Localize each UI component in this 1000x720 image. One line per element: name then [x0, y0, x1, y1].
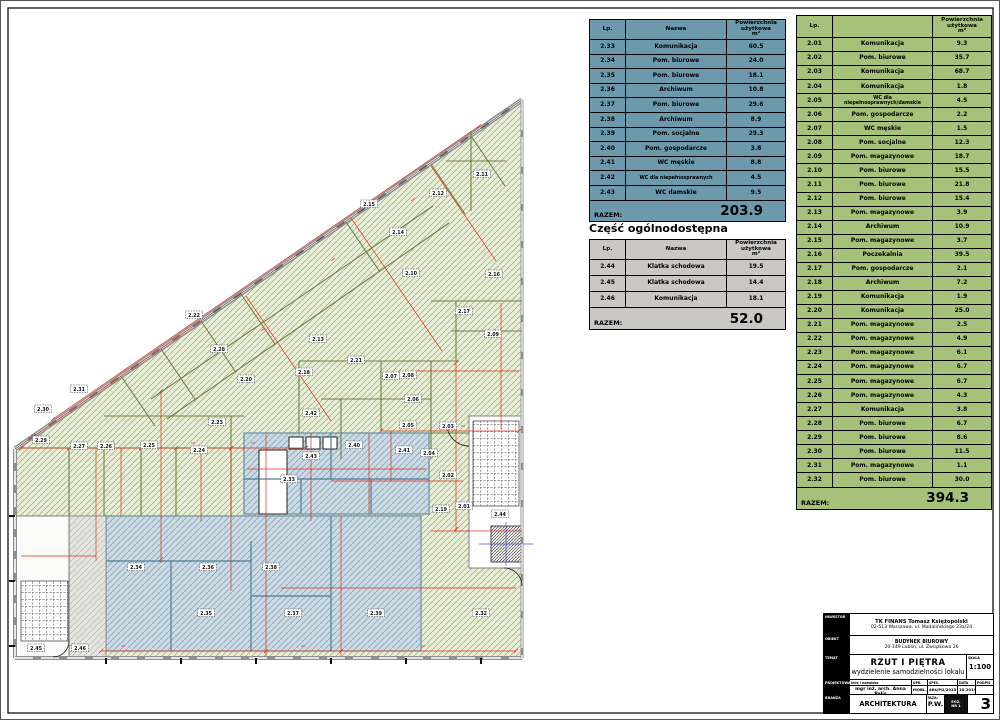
room-label-2-27: 2.27 — [71, 442, 88, 450]
room-label-2-08: 2.08 — [400, 371, 417, 379]
room-label-2-34: 2.34 — [128, 563, 145, 571]
table-row: 2.11Pom. biurowe21.8 — [797, 177, 991, 191]
svg-text:2.26: 2.26 — [100, 444, 112, 450]
room-label-2-33: 2.33 — [281, 475, 298, 483]
svg-text:2.40: 2.40 — [348, 443, 360, 449]
table-row: 2.29Pom. biurowe8.6 — [797, 430, 991, 444]
table-row: 2.23Pom. magazynowe6.1 — [797, 346, 991, 360]
table-row: 2.42WC dla niepełnosprawnych4.5 — [590, 170, 785, 185]
svg-text:2.35: 2.35 — [200, 611, 212, 617]
signature-value — [976, 686, 993, 688]
table-header-row: Lp.Powierzchnia użytkowam² — [797, 16, 991, 37]
elevator-car — [306, 437, 320, 449]
drawing-subtitle: wydzielenie samodzielności lokalu — [851, 668, 964, 676]
room-label-2-05: 2.05 — [400, 421, 417, 429]
stamp-cell: EGZ.NR 1 — [944, 695, 967, 713]
table-header-row: Lp.NazwaPowierzchnia użytkowam² — [590, 240, 785, 259]
room-label-2-31: 2.31 — [71, 385, 88, 393]
room-label-2-24: 2.24 — [191, 446, 208, 454]
svg-text:2.34: 2.34 — [130, 565, 142, 571]
svg-text:2.46: 2.46 — [74, 646, 86, 652]
svg-text:2.24: 2.24 — [193, 448, 205, 454]
room-label-2-25: 2.25 — [141, 441, 158, 449]
room-label-2-01: 2.01 — [456, 502, 473, 510]
room-label-2-06: 2.06 — [405, 395, 422, 403]
table-row: 2.22Pom. magazynowe4.9 — [797, 332, 991, 346]
table-row: 2.27Komunikacja3.8 — [797, 402, 991, 416]
room-label-2-13: 2.13 — [310, 335, 327, 343]
room-label-2-45: 2.45 — [28, 644, 45, 652]
room-label-2-29: 2.29 — [33, 436, 50, 444]
total-value: 52.0 — [730, 311, 763, 327]
date-value: 10.2019 — [958, 686, 975, 693]
table-row: 2.15Pom. magazynowe3.7 — [797, 234, 991, 248]
sheet-number: 3 — [967, 695, 993, 713]
scale-label: SKALA — [967, 655, 981, 661]
room-label-2-42: 2.42 — [303, 409, 320, 417]
svg-text:2.36: 2.36 — [202, 565, 214, 571]
svg-text:2.13: 2.13 — [312, 337, 324, 343]
common-area-heading: Część ogólnodostępna — [589, 222, 728, 235]
room-label-2-38: 2.38 — [263, 563, 280, 571]
svg-text:2.17: 2.17 — [458, 309, 470, 315]
table-lokal-biurowy-1: Lp.NazwaPowierzchnia użytkowam²2.33Komun… — [589, 19, 786, 222]
svg-text:2.22: 2.22 — [188, 313, 200, 319]
room-label-2-26: 2.26 — [98, 442, 115, 450]
room-label-2-10: 2.10 — [403, 269, 420, 277]
svg-text:2.12: 2.12 — [432, 191, 444, 197]
table-row: 2.20Komunikacja25.0 — [797, 304, 991, 318]
table-row: 2.10Pom. biurowe15.5 — [797, 163, 991, 177]
table-row: 2.30Pom. biurowe11.5 — [797, 444, 991, 458]
svg-text:2.45: 2.45 — [30, 646, 42, 652]
svg-text:2.02: 2.02 — [442, 473, 454, 479]
table-row: 2.04Komunikacja1.8 — [797, 79, 991, 93]
room-label-2-18: 2.18 — [296, 368, 313, 376]
total-label: RAZEM: — [797, 495, 829, 509]
svg-text:2.39: 2.39 — [370, 611, 382, 617]
total-label: RAZEM: — [590, 315, 622, 329]
object-label: OBIEKT — [824, 636, 850, 654]
scale-value: 1:100 — [969, 663, 991, 671]
svg-text:2.15: 2.15 — [363, 202, 375, 208]
svg-text:2.27: 2.27 — [73, 444, 85, 450]
svg-text:2.33: 2.33 — [283, 477, 295, 483]
svg-text:2.38: 2.38 — [265, 565, 277, 571]
upr-value: MOBL. — [912, 686, 927, 693]
table-total-row: RAZEM:394.3 — [797, 487, 991, 509]
table-row: 2.06Pom. gospodarcze2.2 — [797, 107, 991, 121]
phase-value: P.W. — [928, 700, 943, 708]
table-row: 2.41WC męskie8.8 — [590, 156, 785, 171]
svg-text:2.03: 2.03 — [442, 424, 454, 430]
total-value: 394.3 — [926, 490, 969, 506]
object-address: 20-149 Lublin, ul. Związkowa 26 — [884, 645, 958, 650]
branch-value: ARCHITEKTURA — [850, 695, 926, 713]
room-label-2-37: 2.37 — [285, 609, 302, 617]
table-row: 2.21Pom. magazynowe2.5 — [797, 318, 991, 332]
svg-text:2.41: 2.41 — [398, 448, 410, 454]
svg-text:2.20: 2.20 — [240, 377, 252, 383]
svg-text:2.04: 2.04 — [423, 451, 435, 457]
svg-text:2.42: 2.42 — [305, 411, 317, 417]
room-label-2-44: 2.44 — [492, 510, 509, 518]
table-czesc-ogolnodostepna: Lp.NazwaPowierzchnia użytkowam²2.44Klatk… — [589, 239, 786, 330]
room-label-2-17: 2.17 — [456, 307, 473, 315]
room-label-2-19: 2.19 — [433, 505, 450, 513]
room-label-2-02: 2.02 — [440, 471, 457, 479]
table-row: 2.45Klatka schodowa14.4 — [590, 275, 785, 291]
total-label: RAZEM: — [590, 207, 622, 221]
table-row: 2.16Poczekalnia39.5 — [797, 248, 991, 262]
svg-text:2.07: 2.07 — [385, 374, 397, 380]
investor-label: INWESTOR — [824, 614, 850, 635]
branch-label: BRANŻA — [824, 695, 850, 713]
room-label-2-35: 2.35 — [198, 609, 215, 617]
table-row: 2.38Archiwum8.9 — [590, 112, 785, 127]
table-row: 2.32Pom. biurowe30.0 — [797, 472, 991, 486]
room-label-2-09: 2.09 — [485, 330, 502, 338]
room-label-2-43: 2.43 — [303, 452, 320, 460]
table-row: 2.18Archiwum7.2 — [797, 276, 991, 290]
room-label-2-03: 2.03 — [440, 422, 457, 430]
table-row: 2.08Pom. socjalne12.3 — [797, 135, 991, 149]
svg-text:2.16: 2.16 — [488, 272, 500, 278]
table-row: 2.01Komunikacja9.3 — [797, 37, 991, 51]
svg-text:2.10: 2.10 — [405, 271, 417, 277]
table-row: 2.31Pom. magazynowe1.1 — [797, 458, 991, 472]
room-label-2-36: 2.36 — [200, 563, 217, 571]
spec-value: 464/PO/2015 — [928, 686, 957, 693]
table-row: 2.43WC damskie9.5 — [590, 185, 785, 200]
table-row: 2.36Archiwum10.8 — [590, 83, 785, 98]
table-row: 2.07WC męskie1.5 — [797, 121, 991, 135]
table-row: 2.37Pom. biurowe29.6 — [590, 97, 785, 112]
drawing-sheet: 2.012.022.032.042.052.062.072.082.092.10… — [0, 0, 1000, 720]
svg-text:2.30: 2.30 — [37, 407, 49, 413]
table-row: 2.12Pom. biurowe15.4 — [797, 192, 991, 206]
table-row: 2.24Pom. magazynowe6.7 — [797, 360, 991, 374]
stair-2-45 — [21, 581, 68, 641]
room-label-2-16: 2.16 — [486, 270, 503, 278]
room-label-2-11: 2.11 — [474, 170, 491, 178]
room-label-2-32: 2.32 — [473, 609, 490, 617]
table-row: 2.33Komunikacja60.5 — [590, 39, 785, 54]
table-row: 2.13Pom. magazynowe3.9 — [797, 206, 991, 220]
table-lokal-biurowy-2: Lp.Powierzchnia użytkowam²2.01Komunikacj… — [796, 15, 992, 510]
room-label-2-20: 2.20 — [238, 375, 255, 383]
room-label-2-28: 2.28 — [211, 345, 228, 353]
svg-text:2.23: 2.23 — [211, 420, 223, 426]
svg-text:2.19: 2.19 — [435, 507, 447, 513]
room-label-2-21: 2.21 — [348, 356, 365, 364]
svg-text:2.01: 2.01 — [458, 504, 470, 510]
table-row: 2.26Pom. magazynowe4.3 — [797, 388, 991, 402]
table-row: 2.02Pom. biurowe35.7 — [797, 51, 991, 65]
svg-text:2.18: 2.18 — [298, 370, 310, 376]
room-label-2-04: 2.04 — [421, 449, 438, 457]
table-row: 2.34Pom. biurowe24.0 — [590, 54, 785, 69]
table-row: 2.03Komunikacja68.7 — [797, 65, 991, 79]
room-label-2-40: 2.40 — [346, 441, 363, 449]
room-label-2-23: 2.23 — [209, 418, 226, 426]
room-label-2-41: 2.41 — [396, 446, 413, 454]
svg-text:2.21: 2.21 — [350, 358, 362, 364]
drawing-title: RZUT I PIĘTRA — [870, 658, 945, 668]
elevator-car — [289, 437, 303, 449]
room-label-2-30: 2.30 — [35, 405, 52, 413]
svg-text:2.14: 2.14 — [392, 230, 404, 236]
table-row: 2.35Pom. biurowe18.1 — [590, 68, 785, 83]
table-row: 2.19Komunikacja1.9 — [797, 290, 991, 304]
svg-text:2.28: 2.28 — [213, 347, 225, 353]
table-row: 2.09Pom. magazynowe18.7 — [797, 149, 991, 163]
table-row: 2.40Pom. gospodarcze3.8 — [590, 141, 785, 156]
table-row: 2.05WC dla niepełnosprawnych/damskie4.5 — [797, 93, 991, 107]
subject-label: TEMAT — [824, 655, 850, 679]
svg-text:2.32: 2.32 — [475, 611, 487, 617]
svg-text:2.29: 2.29 — [35, 438, 47, 444]
table-row: 2.17Pom. gospodarcze2.1 — [797, 262, 991, 276]
svg-text:2.08: 2.08 — [402, 373, 414, 379]
svg-text:2.31: 2.31 — [73, 387, 85, 393]
table-total-row: RAZEM:52.0 — [590, 307, 785, 329]
title-block: INWESTOR TK FINANS Tomasz Księżopolski 0… — [823, 613, 994, 714]
svg-text:2.43: 2.43 — [305, 454, 317, 460]
svg-text:2.37: 2.37 — [287, 611, 299, 617]
room-label-2-22: 2.22 — [186, 311, 203, 319]
svg-text:2.25: 2.25 — [143, 443, 155, 449]
room-label-2-07: 2.07 — [383, 372, 400, 380]
elevator-car — [323, 437, 337, 449]
svg-text:2.09: 2.09 — [487, 332, 499, 338]
room-label-2-14: 2.14 — [390, 228, 407, 236]
table-header-row: Lp.NazwaPowierzchnia użytkowam² — [590, 20, 785, 39]
room-label-2-46: 2.46 — [72, 644, 89, 652]
svg-text:2.06: 2.06 — [407, 397, 419, 403]
stair-2-44 — [473, 421, 519, 506]
investor-address: 02-513 Warszawa, ul. Madalińskiego 23a/2… — [871, 625, 972, 630]
total-value: 203.9 — [720, 203, 763, 219]
table-row: 2.25Pom. magazynowe6.7 — [797, 374, 991, 388]
svg-text:2.11: 2.11 — [476, 172, 488, 178]
table-total-row: RAZEM:203.9 — [590, 200, 785, 221]
table-row: 2.14Archiwum10.9 — [797, 220, 991, 234]
room-label-2-39: 2.39 — [368, 609, 385, 617]
table-row: 2.44Klatka schodowa19.5 — [590, 259, 785, 275]
room-label-2-12: 2.12 — [430, 189, 447, 197]
designer-label: PROJEKTOWAŁ — [824, 680, 850, 694]
table-row: 2.28Pom. biurowe6.7 — [797, 416, 991, 430]
table-row: 2.46Komunikacja18.1 — [590, 291, 785, 307]
table-row: 2.39Pom. socjalne29.3 — [590, 127, 785, 142]
svg-text:2.44: 2.44 — [494, 512, 506, 518]
svg-text:2.05: 2.05 — [402, 423, 414, 429]
room-label-2-15: 2.15 — [361, 200, 378, 208]
